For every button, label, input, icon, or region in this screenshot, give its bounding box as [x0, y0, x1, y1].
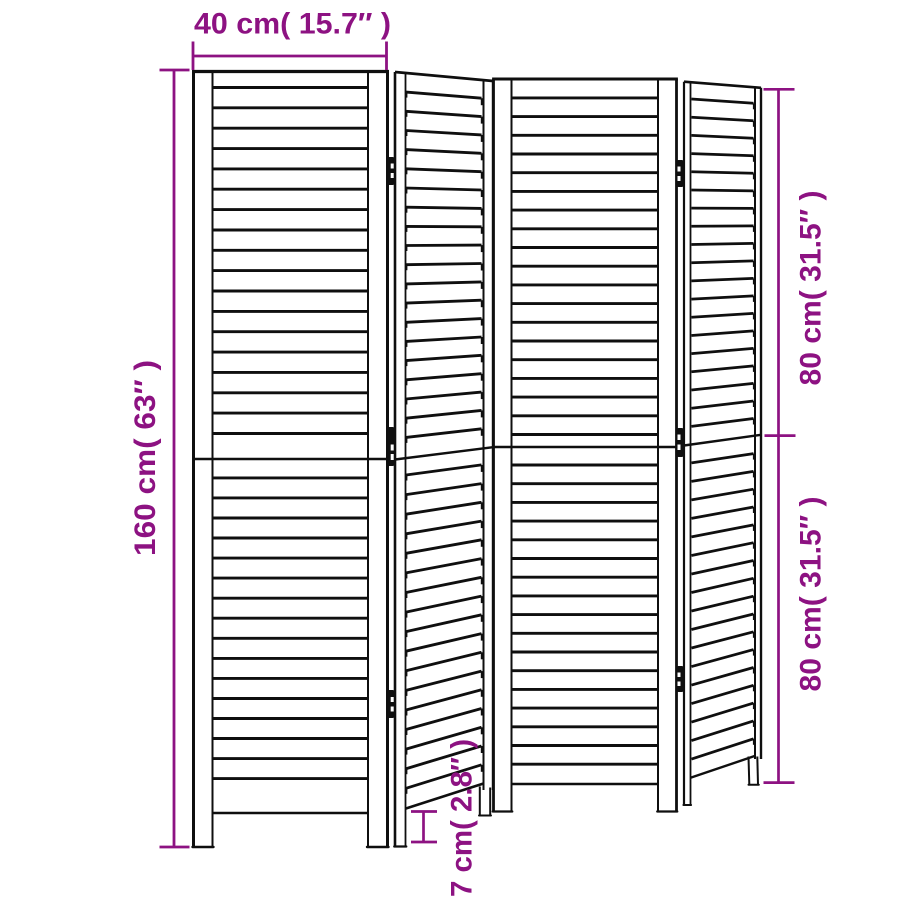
svg-text:7 cm( 2.8″ ): 7 cm( 2.8″ ): [446, 739, 479, 897]
svg-text:80 cm( 31.5″ ): 80 cm( 31.5″ ): [795, 497, 828, 692]
svg-text:160 cm( 63″ ): 160 cm( 63″ ): [129, 360, 162, 556]
svg-text:80 cm( 31.5″ ): 80 cm( 31.5″ ): [795, 191, 828, 386]
svg-text:40 cm( 15.7″ ): 40 cm( 15.7″ ): [194, 8, 391, 41]
